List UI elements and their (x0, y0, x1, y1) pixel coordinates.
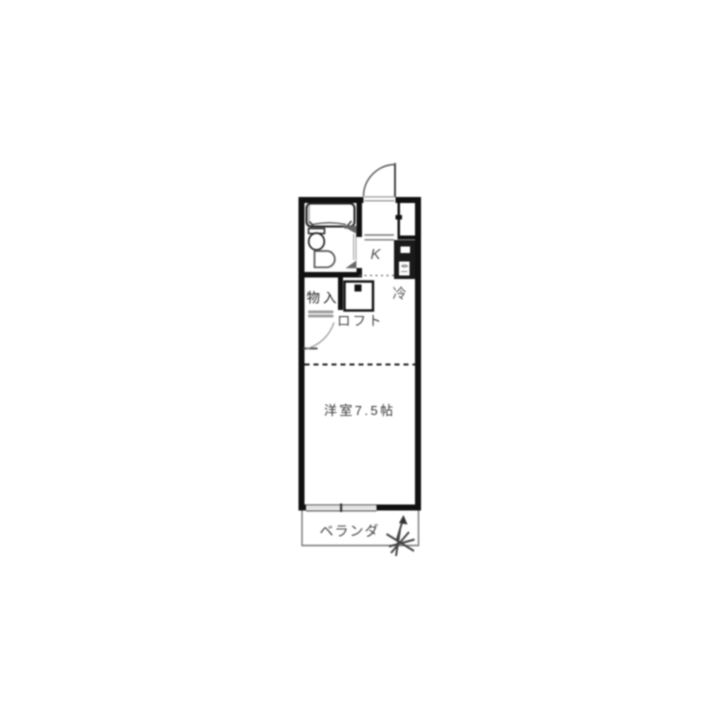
svg-text:物入: 物入 (307, 290, 340, 305)
svg-text:冷: 冷 (393, 286, 407, 302)
svg-text:洋室7.5帖: 洋室7.5帖 (324, 403, 395, 418)
svg-text:ロフト: ロフト (337, 314, 384, 329)
svg-text:ベランダ: ベランダ (320, 523, 380, 539)
svg-text:K: K (371, 246, 382, 263)
